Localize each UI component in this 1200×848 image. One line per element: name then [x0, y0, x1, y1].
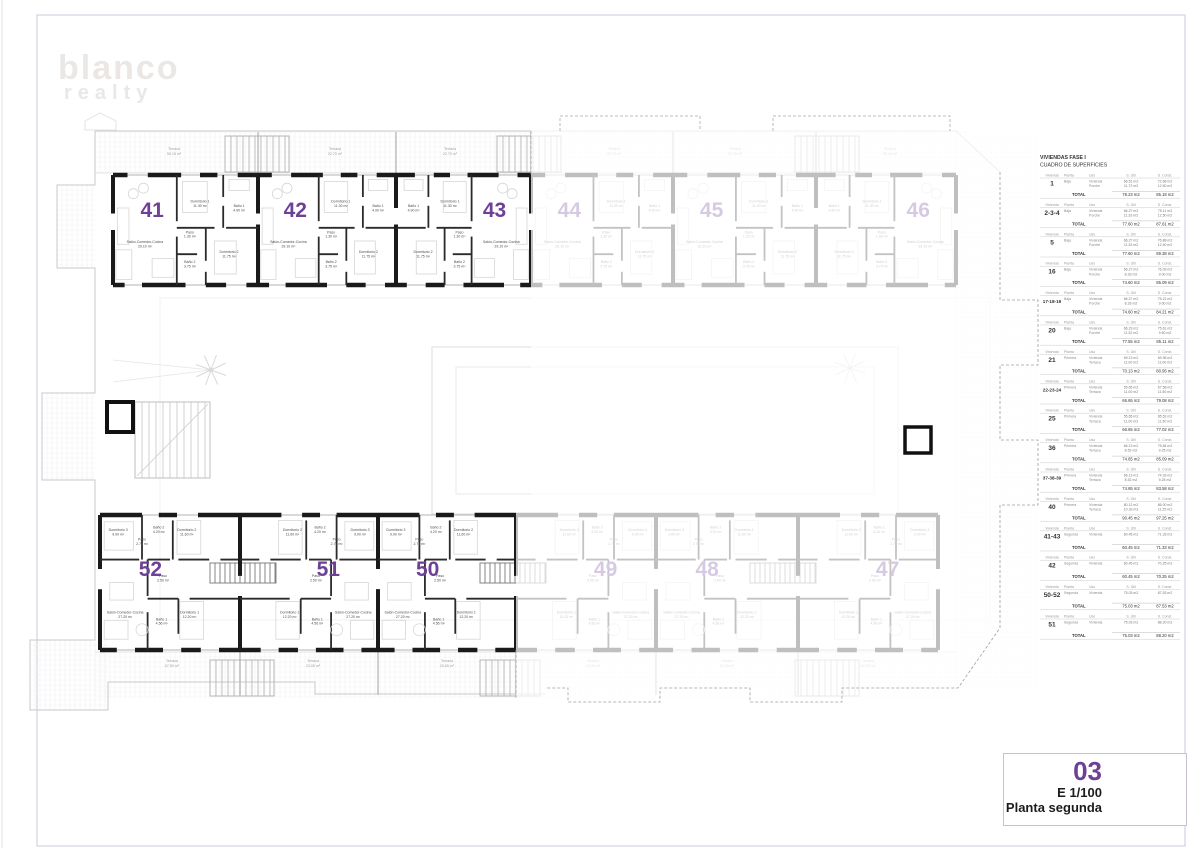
terrace-name-label: Terraza — [168, 147, 180, 151]
unit-number: 51 — [317, 558, 341, 581]
elevator-shaft — [107, 402, 133, 432]
unit-43: Salón-Comedor-Cocina29.10 m²Dormitorio 1… — [396, 175, 531, 285]
total-label: TOTAL — [1072, 368, 1086, 373]
col-header: Vivienda — [1045, 174, 1058, 178]
room-area-label: 3.75 m² — [454, 264, 467, 268]
col-header: S. Útil — [1126, 291, 1136, 295]
col-header: S. Const. — [1158, 291, 1172, 295]
furniture-outline — [382, 620, 405, 639]
const-cell: 9.00 m2 — [1159, 272, 1172, 276]
room-name-label: Baño 2 — [184, 260, 195, 264]
total-const: 71.33 m2 — [1156, 545, 1174, 550]
uso-cell: Vivienda — [1089, 415, 1102, 419]
unit-number: 50 — [416, 558, 439, 581]
total-const: 70.25 m2 — [1156, 574, 1174, 579]
col-header: Vivienda — [1045, 232, 1058, 236]
room-name-label: Dormitorio 2 — [283, 528, 302, 532]
total-label: TOTAL — [1072, 457, 1086, 462]
uso-cell: Porche — [1089, 302, 1100, 306]
vivienda-id: 22-23-24 — [1043, 387, 1062, 392]
uso-cell: Terraza — [1089, 361, 1101, 365]
uso-cell: Porche — [1089, 214, 1100, 218]
col-header: Planta — [1064, 615, 1074, 619]
vivienda-id: 17-18-19 — [1043, 299, 1062, 304]
terrace-area-label: 25.65 m² — [440, 664, 455, 668]
room-name-label: Dormitorio 1 — [280, 611, 299, 615]
util-cell: 66.27 m2 — [1124, 238, 1139, 242]
terrace-name-label: Terraza — [329, 147, 341, 151]
furniture-outline — [388, 583, 411, 601]
room-area-label: 4.90 m² — [408, 208, 421, 212]
sheet-floor-name: Planta segunda — [1006, 800, 1102, 815]
terrace-name-label: Terraza — [444, 147, 456, 151]
room-area-label: 1.30 m² — [184, 235, 197, 239]
room-name-label: Baño 2 — [430, 526, 441, 530]
col-header: Vivienda — [1045, 291, 1058, 295]
surfaces-block-16: ViviendaPlantaUsoS. ÚtilS. Const.16BajaV… — [1040, 262, 1180, 287]
room-name-label: Baño 2 — [314, 526, 325, 530]
const-cell: 65.52 m2 — [1158, 415, 1173, 419]
surfaces-block-22-23-24: ViviendaPlantaUsoS. ÚtilS. Const.22-23-2… — [1040, 379, 1180, 404]
util-cell: 66.23 m2 — [1124, 327, 1139, 331]
unit-number: 42 — [284, 199, 307, 222]
total-const: 80.95 m2 — [1156, 368, 1174, 373]
room-area-label: 4.56 m² — [311, 622, 324, 626]
const-cell: 76.09 m2 — [1158, 268, 1173, 272]
uso-cell: Vivienda — [1089, 444, 1102, 448]
col-header: Planta — [1064, 409, 1074, 413]
room-area-label: 27.20 m² — [396, 615, 411, 619]
col-header: Planta — [1064, 203, 1074, 207]
util-cell: 11.33 m2 — [1124, 243, 1138, 247]
uso-cell: Terraza — [1089, 419, 1101, 423]
uso-cell: Vivienda — [1089, 532, 1102, 536]
col-header: Vivienda — [1045, 615, 1058, 619]
room-area-label: 4.20 m² — [430, 530, 443, 534]
planta-cell: Baja — [1064, 209, 1071, 213]
room-area-label: 4.20 m² — [314, 530, 327, 534]
uso-cell: Terraza — [1089, 390, 1101, 394]
room-name-label: Baño 1 — [408, 204, 419, 208]
const-cell: 76.88 m2 — [1158, 238, 1173, 242]
planta-cell: Baja — [1064, 327, 1071, 331]
surfaces-block-1: ViviendaPlantaUsoS. ÚtilS. Const.1BajaVi… — [1040, 174, 1180, 199]
util-cell: 59.13 m2 — [1124, 356, 1139, 360]
col-header: Uso — [1089, 497, 1095, 501]
col-header: Vivienda — [1045, 438, 1058, 442]
furniture-outline — [516, 208, 527, 244]
uso-cell: Vivienda — [1089, 238, 1102, 242]
furniture-outline — [261, 250, 276, 280]
total-util: 74.60 m2 — [1122, 310, 1140, 315]
vivienda-id: 40 — [1048, 504, 1056, 511]
const-cell: 72.68 m2 — [1158, 180, 1173, 184]
room-name-label: Dormitorio 3 — [386, 528, 405, 532]
room-area-label: 4.56 m² — [433, 622, 446, 626]
surfaces-table: VIVIENDAS FASE ICUADRO DE SUPERFICIESViv… — [1040, 155, 1180, 639]
plan-sheet: Salón-Comedor-Cocina29.10 m²Dormitorio 1… — [0, 0, 1200, 848]
total-const: 85.11 m2 — [1156, 339, 1174, 344]
vivienda-id: 41-43 — [1044, 533, 1061, 540]
room-area-label: 3.75 m² — [325, 264, 338, 268]
planta-cell: Primera — [1064, 474, 1076, 478]
const-cell: 9.25 m2 — [1159, 478, 1172, 482]
room-area-label: 4.56 m² — [156, 622, 169, 626]
col-header: Uso — [1089, 321, 1095, 325]
const-cell: 11.25 m2 — [1158, 508, 1172, 512]
col-header: Uso — [1089, 556, 1095, 560]
furniture-outline — [229, 179, 249, 190]
room-name-label: Dormitorio 1 — [457, 611, 476, 615]
sheet-scale: E 1/100 — [1057, 785, 1102, 800]
vivienda-id: 1 — [1050, 181, 1054, 188]
util-cell: 8.52 m2 — [1125, 449, 1138, 453]
col-header: Planta — [1064, 526, 1074, 530]
furniture-outline — [454, 520, 477, 554]
col-header: S. Útil — [1126, 321, 1136, 325]
col-header: S. Const. — [1158, 526, 1172, 530]
planta-cell: Baja — [1064, 268, 1071, 272]
total-label: TOTAL — [1072, 398, 1086, 403]
terrace-name-label: Terraza — [307, 659, 319, 663]
col-header: Planta — [1064, 468, 1074, 472]
furniture-outline — [474, 259, 494, 278]
util-cell: 66.51 m2 — [1124, 180, 1139, 184]
uso-cell: Porche — [1089, 243, 1100, 247]
const-cell: 67.58 m2 — [1158, 385, 1173, 389]
col-header: Planta — [1064, 438, 1074, 442]
unit-number: 52 — [139, 558, 162, 581]
unit-42: Salón-Comedor-Cocina29.10 m²Dormitorio 1… — [258, 175, 396, 285]
surfaces-block-5: ViviendaPlantaUsoS. ÚtilS. Const.5BajaVi… — [1040, 232, 1180, 257]
room-area-label: 2.70 m² — [331, 542, 344, 546]
room-name-label: Salón-Comedor-Cocina — [483, 240, 520, 244]
col-header: Planta — [1064, 232, 1074, 236]
const-cell: 12.50 m2 — [1158, 243, 1173, 247]
furniture-outline — [117, 208, 129, 244]
const-cell: 71.33 m2 — [1158, 532, 1173, 536]
const-cell: 75.21 m2 — [1158, 297, 1173, 301]
planta-cell: Segunda — [1064, 532, 1078, 536]
furniture-outline — [331, 624, 343, 636]
col-header: Vivienda — [1045, 203, 1058, 207]
terrace-name-label: Terraza — [441, 659, 453, 663]
const-cell: 12.50 m2 — [1158, 214, 1173, 218]
surfaces-block-20: ViviendaPlantaUsoS. ÚtilS. Const.20BajaV… — [1040, 321, 1180, 346]
col-header: Uso — [1089, 468, 1095, 472]
total-const: 89.38 m2 — [1156, 251, 1174, 256]
uso-cell: Vivienda — [1089, 180, 1102, 184]
total-label: TOTAL — [1072, 192, 1086, 197]
uso-cell: Vivienda — [1089, 268, 1102, 272]
vivienda-id: 20 — [1048, 328, 1056, 335]
uso-cell: Vivienda — [1089, 327, 1102, 331]
total-const: 85.09 m2 — [1156, 457, 1174, 462]
room-area-label: 29.10 m² — [138, 245, 153, 249]
surfaces-block-21: ViviendaPlantaUsoS. ÚtilS. Const.21Prime… — [1040, 350, 1180, 375]
room-name-label: Dormitorio 1 — [440, 200, 459, 204]
floorplan-drawing: Salón-Comedor-Cocina29.10 m²Dormitorio 1… — [0, 0, 1200, 848]
furniture-outline — [507, 189, 517, 199]
room-area-label: 27.20 m² — [118, 615, 133, 619]
furniture-outline — [279, 520, 302, 554]
room-name-label: Dormitorio 3 — [351, 528, 370, 532]
col-header: S. Útil — [1126, 409, 1136, 413]
furniture-outline — [404, 179, 423, 190]
total-util: 90.45 m2 — [1122, 515, 1140, 520]
col-header: Uso — [1089, 232, 1095, 236]
pergola-line — [113, 370, 211, 382]
furniture-outline — [152, 259, 174, 278]
room-area-label: 29.10 m² — [281, 245, 296, 249]
const-cell: 12.50 m2 — [1158, 184, 1173, 188]
furniture-outline — [116, 250, 132, 280]
total-util: 60.45 m2 — [1122, 545, 1140, 550]
terrace-area-label: 59.18 m² — [167, 152, 182, 156]
const-cell: 9.00 m2 — [1159, 302, 1172, 306]
room-area-label: 11.30 m² — [334, 204, 348, 208]
const-cell: 75.61 m2 — [1158, 327, 1173, 331]
total-const: 77.02 m2 — [1156, 427, 1174, 432]
col-header: S. Const. — [1158, 203, 1172, 207]
total-const: 88.20 m2 — [1156, 633, 1174, 638]
vivienda-id: 37-38-39 — [1043, 476, 1062, 481]
uso-cell: Vivienda — [1089, 297, 1102, 301]
col-header: S. Útil — [1126, 615, 1136, 619]
table-title-2: CUADRO DE SUPERFICIES — [1040, 163, 1108, 169]
room-area-label: 29.10 m² — [494, 245, 509, 249]
furniture-outline — [498, 183, 508, 193]
total-label: TOTAL — [1072, 310, 1086, 315]
col-header: Vivienda — [1045, 526, 1058, 530]
surfaces-block-50-52: ViviendaPlantaUsoS. ÚtilS. Const.50-52Se… — [1040, 585, 1180, 610]
col-header: Uso — [1089, 409, 1095, 413]
col-header: Planta — [1064, 585, 1074, 589]
col-header: Uso — [1089, 526, 1095, 530]
furniture-outline — [138, 183, 148, 193]
total-const: 87.61 m2 — [1156, 221, 1174, 226]
room-name-label: Baño 2 — [454, 260, 465, 264]
room-name-label: Dormitorio 1 — [180, 611, 199, 615]
planta-cell: Primera — [1064, 503, 1076, 507]
planta-cell: Segunda — [1064, 621, 1078, 625]
total-const: 85.09 m2 — [1156, 280, 1174, 285]
total-label: TOTAL — [1072, 604, 1086, 609]
util-cell: 60.45 m2 — [1124, 562, 1139, 566]
surfaces-block-40: ViviendaPlantaUsoS. ÚtilS. Const.40Prime… — [1040, 497, 1180, 522]
total-const: 85.18 m2 — [1156, 192, 1174, 197]
unit-51: Salón-Comedor-Cocina27.20 m²Dormitorio 1… — [240, 515, 378, 650]
room-name-label: Paso — [138, 538, 146, 542]
planta-cell: Primera — [1064, 444, 1076, 448]
planta-cell: Segunda — [1064, 562, 1078, 566]
const-cell: 86.00 m2 — [1158, 503, 1173, 507]
furniture-outline — [104, 620, 128, 639]
room-area-label: 1.30 m² — [325, 235, 338, 239]
uso-cell: Porche — [1089, 184, 1100, 188]
total-label: TOTAL — [1072, 486, 1086, 491]
col-header: Uso — [1089, 203, 1095, 207]
planta-cell: Primera — [1064, 415, 1076, 419]
total-label: TOTAL — [1072, 427, 1086, 432]
room-area-label: 9.00 m² — [354, 533, 367, 537]
planta-cell: Baja — [1064, 238, 1071, 242]
vivienda-id: 16 — [1048, 269, 1056, 276]
uso-cell: Vivienda — [1089, 591, 1102, 595]
col-header: S. Útil — [1126, 497, 1136, 501]
room-area-label: 27.20 m² — [346, 615, 361, 619]
col-header: S. Const. — [1158, 556, 1172, 560]
col-header: Uso — [1089, 379, 1095, 383]
vivienda-id: 36 — [1048, 445, 1056, 452]
room-area-label: 11.75 m² — [222, 255, 236, 259]
total-label: TOTAL — [1072, 515, 1086, 520]
const-cell: 11.00 m2 — [1158, 361, 1172, 365]
util-cell: 10.33 m2 — [1124, 508, 1139, 512]
room-name-label: Paso — [333, 538, 341, 542]
room-name-label: Salón-Comedor-Cocina — [385, 611, 422, 615]
surfaces-block-25: ViviendaPlantaUsoS. ÚtilS. Const.25Prime… — [1040, 409, 1180, 434]
col-header: S. Útil — [1126, 526, 1136, 530]
room-area-label: 12.20 m² — [183, 615, 198, 619]
col-header: Uso — [1089, 438, 1095, 442]
col-header: Vivienda — [1045, 585, 1058, 589]
col-header: S. Útil — [1126, 203, 1136, 207]
room-area-label: 9.00 m² — [112, 533, 125, 537]
room-name-label: Dormitorio 2 — [413, 250, 432, 254]
const-cell: 9.50 m2 — [1159, 331, 1172, 335]
room-name-label: Dormitorio 2 — [454, 528, 473, 532]
furniture-outline — [282, 183, 292, 193]
furniture-outline — [272, 189, 282, 199]
furniture-outline — [262, 208, 273, 244]
room-name-label: Dormitorio 3 — [109, 528, 128, 532]
col-header: S. Const. — [1158, 321, 1172, 325]
surfaces-block-51: ViviendaPlantaUsoS. ÚtilS. Const.51Segun… — [1040, 615, 1180, 640]
uso-cell: Vivienda — [1089, 503, 1102, 507]
unit-number: 41 — [140, 199, 164, 222]
room-name-label: Dormitorio 2 — [177, 528, 196, 532]
room-name-label: Baño 2 — [153, 526, 164, 530]
col-header: S. Útil — [1126, 232, 1136, 236]
surfaces-block-17-18-19: ViviendaPlantaUsoS. ÚtilS. Const.17-18-1… — [1040, 291, 1180, 316]
total-util: 74.60 m2 — [1122, 280, 1140, 285]
util-cell: 55.65 m2 — [1124, 415, 1139, 419]
courtyard-stair — [107, 402, 210, 478]
util-cell: 11.00 m2 — [1124, 419, 1138, 423]
room-name-label: Baño 1 — [312, 617, 323, 621]
uso-cell: Vivienda — [1089, 474, 1102, 478]
const-cell: 11.50 m2 — [1158, 390, 1172, 394]
col-header: S. Útil — [1126, 438, 1136, 442]
col-header: S. Const. — [1158, 497, 1172, 501]
util-cell: 66.13 m2 — [1124, 444, 1139, 448]
elevator-shaft — [905, 427, 931, 453]
room-area-label: 12.20 m² — [459, 615, 474, 619]
watermark-house-icon — [85, 113, 116, 130]
util-cell: 11.32 m2 — [1124, 331, 1138, 335]
furniture-outline — [128, 189, 138, 199]
terrace-area-label: 67.50 m² — [165, 664, 180, 668]
sheet-number: 03 — [1073, 756, 1102, 787]
vivienda-id: 2-3-4 — [1044, 210, 1060, 217]
unit-number: 43 — [483, 199, 506, 222]
col-header: S. Const. — [1158, 379, 1172, 383]
col-header: Planta — [1064, 291, 1074, 295]
total-util: 66.65 m2 — [1122, 427, 1140, 432]
total-util: 75.03 m2 — [1122, 604, 1140, 609]
stair-direction-line — [137, 404, 208, 476]
planta-cell: Primera — [1064, 356, 1076, 360]
total-const: 79.08 m2 — [1156, 398, 1174, 403]
furniture-outline — [350, 620, 373, 639]
room-name-label: Baño 1 — [373, 204, 384, 208]
const-cell: 74.33 m2 — [1158, 474, 1173, 478]
total-util: 70.13 m2 — [1122, 368, 1140, 373]
room-area-label: 11.30 m² — [193, 204, 207, 208]
room-area-label: 11.60 m² — [457, 533, 471, 537]
room-name-label: Paso — [455, 230, 463, 234]
room-name-label: Baño 1 — [234, 204, 245, 208]
uso-cell: Porche — [1089, 331, 1100, 335]
room-area-label: 11.30 m² — [443, 204, 457, 208]
total-util: 77.55 m2 — [1122, 339, 1140, 344]
const-cell: 75.11 m2 — [1158, 209, 1172, 213]
title-block: 03 E 1/100 Planta segunda — [1003, 753, 1187, 826]
total-label: TOTAL — [1072, 339, 1086, 344]
col-header: S. Const. — [1158, 615, 1172, 619]
col-header: Planta — [1064, 321, 1074, 325]
util-cell: 60.45 m2 — [1124, 532, 1139, 536]
room-area-label: 12.20 m² — [283, 615, 298, 619]
table-title-1: VIVIENDAS FASE I — [1040, 155, 1086, 161]
col-header: S. Útil — [1126, 174, 1136, 178]
terrace-area-label: 22.70 m² — [328, 152, 343, 156]
const-cell: 87.53 m2 — [1158, 591, 1173, 595]
room-name-label: Salón-Comedor-Cocina — [335, 611, 372, 615]
room-area-label: 4.90 m² — [233, 208, 246, 212]
furniture-outline — [513, 250, 528, 280]
vivienda-id: 51 — [1048, 622, 1056, 629]
furniture-outline — [368, 179, 387, 190]
col-header: S. Const. — [1158, 232, 1172, 236]
furniture-outline — [136, 624, 148, 636]
room-area-label: 9.00 m² — [390, 533, 403, 537]
room-area-label: 2.70 m² — [413, 542, 426, 546]
unit-41: Salón-Comedor-Cocina29.10 m²Dormitorio 1… — [113, 175, 258, 285]
uso-cell: Vivienda — [1089, 621, 1102, 625]
util-cell: 8.33 m2 — [1125, 302, 1138, 306]
room-name-label: Dormitorio 1 — [331, 200, 350, 204]
room-name-label: Baño 1 — [156, 617, 167, 621]
col-header: Uso — [1089, 350, 1095, 354]
col-header: S. Útil — [1126, 379, 1136, 383]
util-cell: 11.72 m2 — [1124, 184, 1138, 188]
col-header: S. Útil — [1126, 585, 1136, 589]
util-cell: 11.00 m2 — [1124, 390, 1138, 394]
const-cell: 88.20 m2 — [1158, 621, 1173, 625]
total-label: TOTAL — [1072, 633, 1086, 638]
room-name-label: Paso — [186, 230, 194, 234]
total-const: 84.21 m2 — [1156, 310, 1174, 315]
col-header: S. Const. — [1158, 409, 1172, 413]
col-header: Vivienda — [1045, 321, 1058, 325]
util-cell: 11.33 m2 — [1124, 214, 1138, 218]
planta-cell: Baja — [1064, 180, 1071, 184]
total-util: 77.60 m2 — [1122, 221, 1140, 226]
room-name-label: Salón-Comedor-Cocina — [127, 240, 164, 244]
col-header: S. Const. — [1158, 262, 1172, 266]
